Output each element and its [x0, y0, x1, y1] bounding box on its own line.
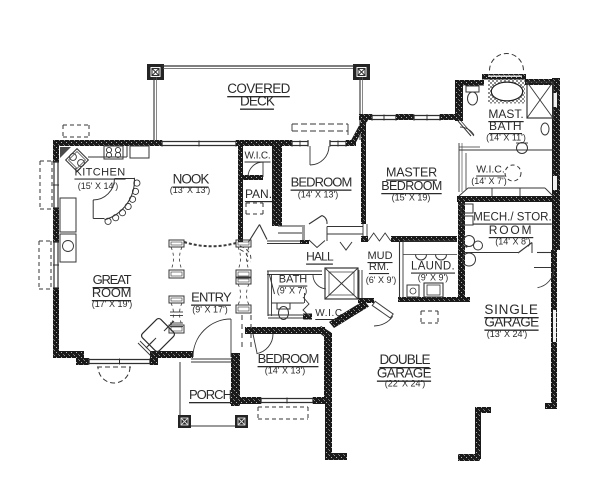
svg-text:BATH: BATH: [279, 274, 308, 286]
svg-text:W.I.C: W.I.C: [315, 308, 342, 319]
svg-text:BATH: BATH: [489, 119, 522, 133]
svg-text:BEDROOM: BEDROOM: [381, 179, 442, 193]
svg-text:PORCH: PORCH: [189, 387, 232, 402]
svg-text:ROOM: ROOM: [92, 285, 131, 300]
svg-text:ENTRY: ENTRY: [191, 290, 232, 305]
svg-text:GARAGE: GARAGE: [484, 315, 539, 330]
svg-text:BEDROOM: BEDROOM: [291, 175, 352, 190]
svg-text:(6' X 9'): (6' X 9'): [366, 275, 396, 285]
svg-text:KITCHEN: KITCHEN: [74, 167, 125, 179]
svg-text:(14' X 13'): (14' X 13'): [298, 190, 338, 200]
svg-text:PAN.: PAN.: [245, 187, 272, 201]
svg-text:(14' X 7'): (14' X 7'): [471, 176, 506, 186]
svg-text:(9' X 17'): (9' X 17'): [192, 305, 227, 315]
svg-text:W.I.C.: W.I.C.: [476, 164, 505, 176]
svg-text:(14' X 13'): (14' X 13'): [265, 366, 305, 376]
svg-text:(13' X 24'): (13' X 24'): [487, 329, 527, 339]
svg-text:(9' X 9'): (9' X 9'): [418, 273, 448, 283]
svg-text:(14' X 11'): (14' X 11'): [486, 133, 526, 143]
svg-text:(17' X 19'): (17' X 19'): [92, 299, 132, 309]
svg-text:DECK: DECK: [240, 94, 275, 109]
svg-text:RM.: RM.: [369, 261, 389, 273]
svg-text:LAUND.: LAUND.: [411, 261, 455, 273]
svg-text:MASTER: MASTER: [386, 166, 437, 180]
svg-text:(9' X 7'): (9' X 7'): [277, 286, 307, 296]
svg-text:W.I.C.: W.I.C.: [244, 151, 270, 162]
svg-text:(15' X 19): (15' X 19): [392, 193, 431, 203]
svg-text:BEDROOM: BEDROOM: [258, 351, 319, 366]
svg-text:(13' X 13'): (13' X 13'): [170, 185, 210, 195]
svg-text:(14' X 8'): (14' X 8'): [495, 237, 530, 247]
svg-text:HALL: HALL: [306, 250, 334, 264]
svg-text:●●: ●●: [461, 244, 469, 250]
svg-text:(22' X 24'): (22' X 24'): [385, 379, 425, 389]
svg-text:MECH./ STOR.: MECH./ STOR.: [473, 212, 551, 224]
svg-text:(15' X 14'): (15' X 14'): [78, 181, 118, 191]
svg-text:ROOM: ROOM: [489, 223, 534, 237]
